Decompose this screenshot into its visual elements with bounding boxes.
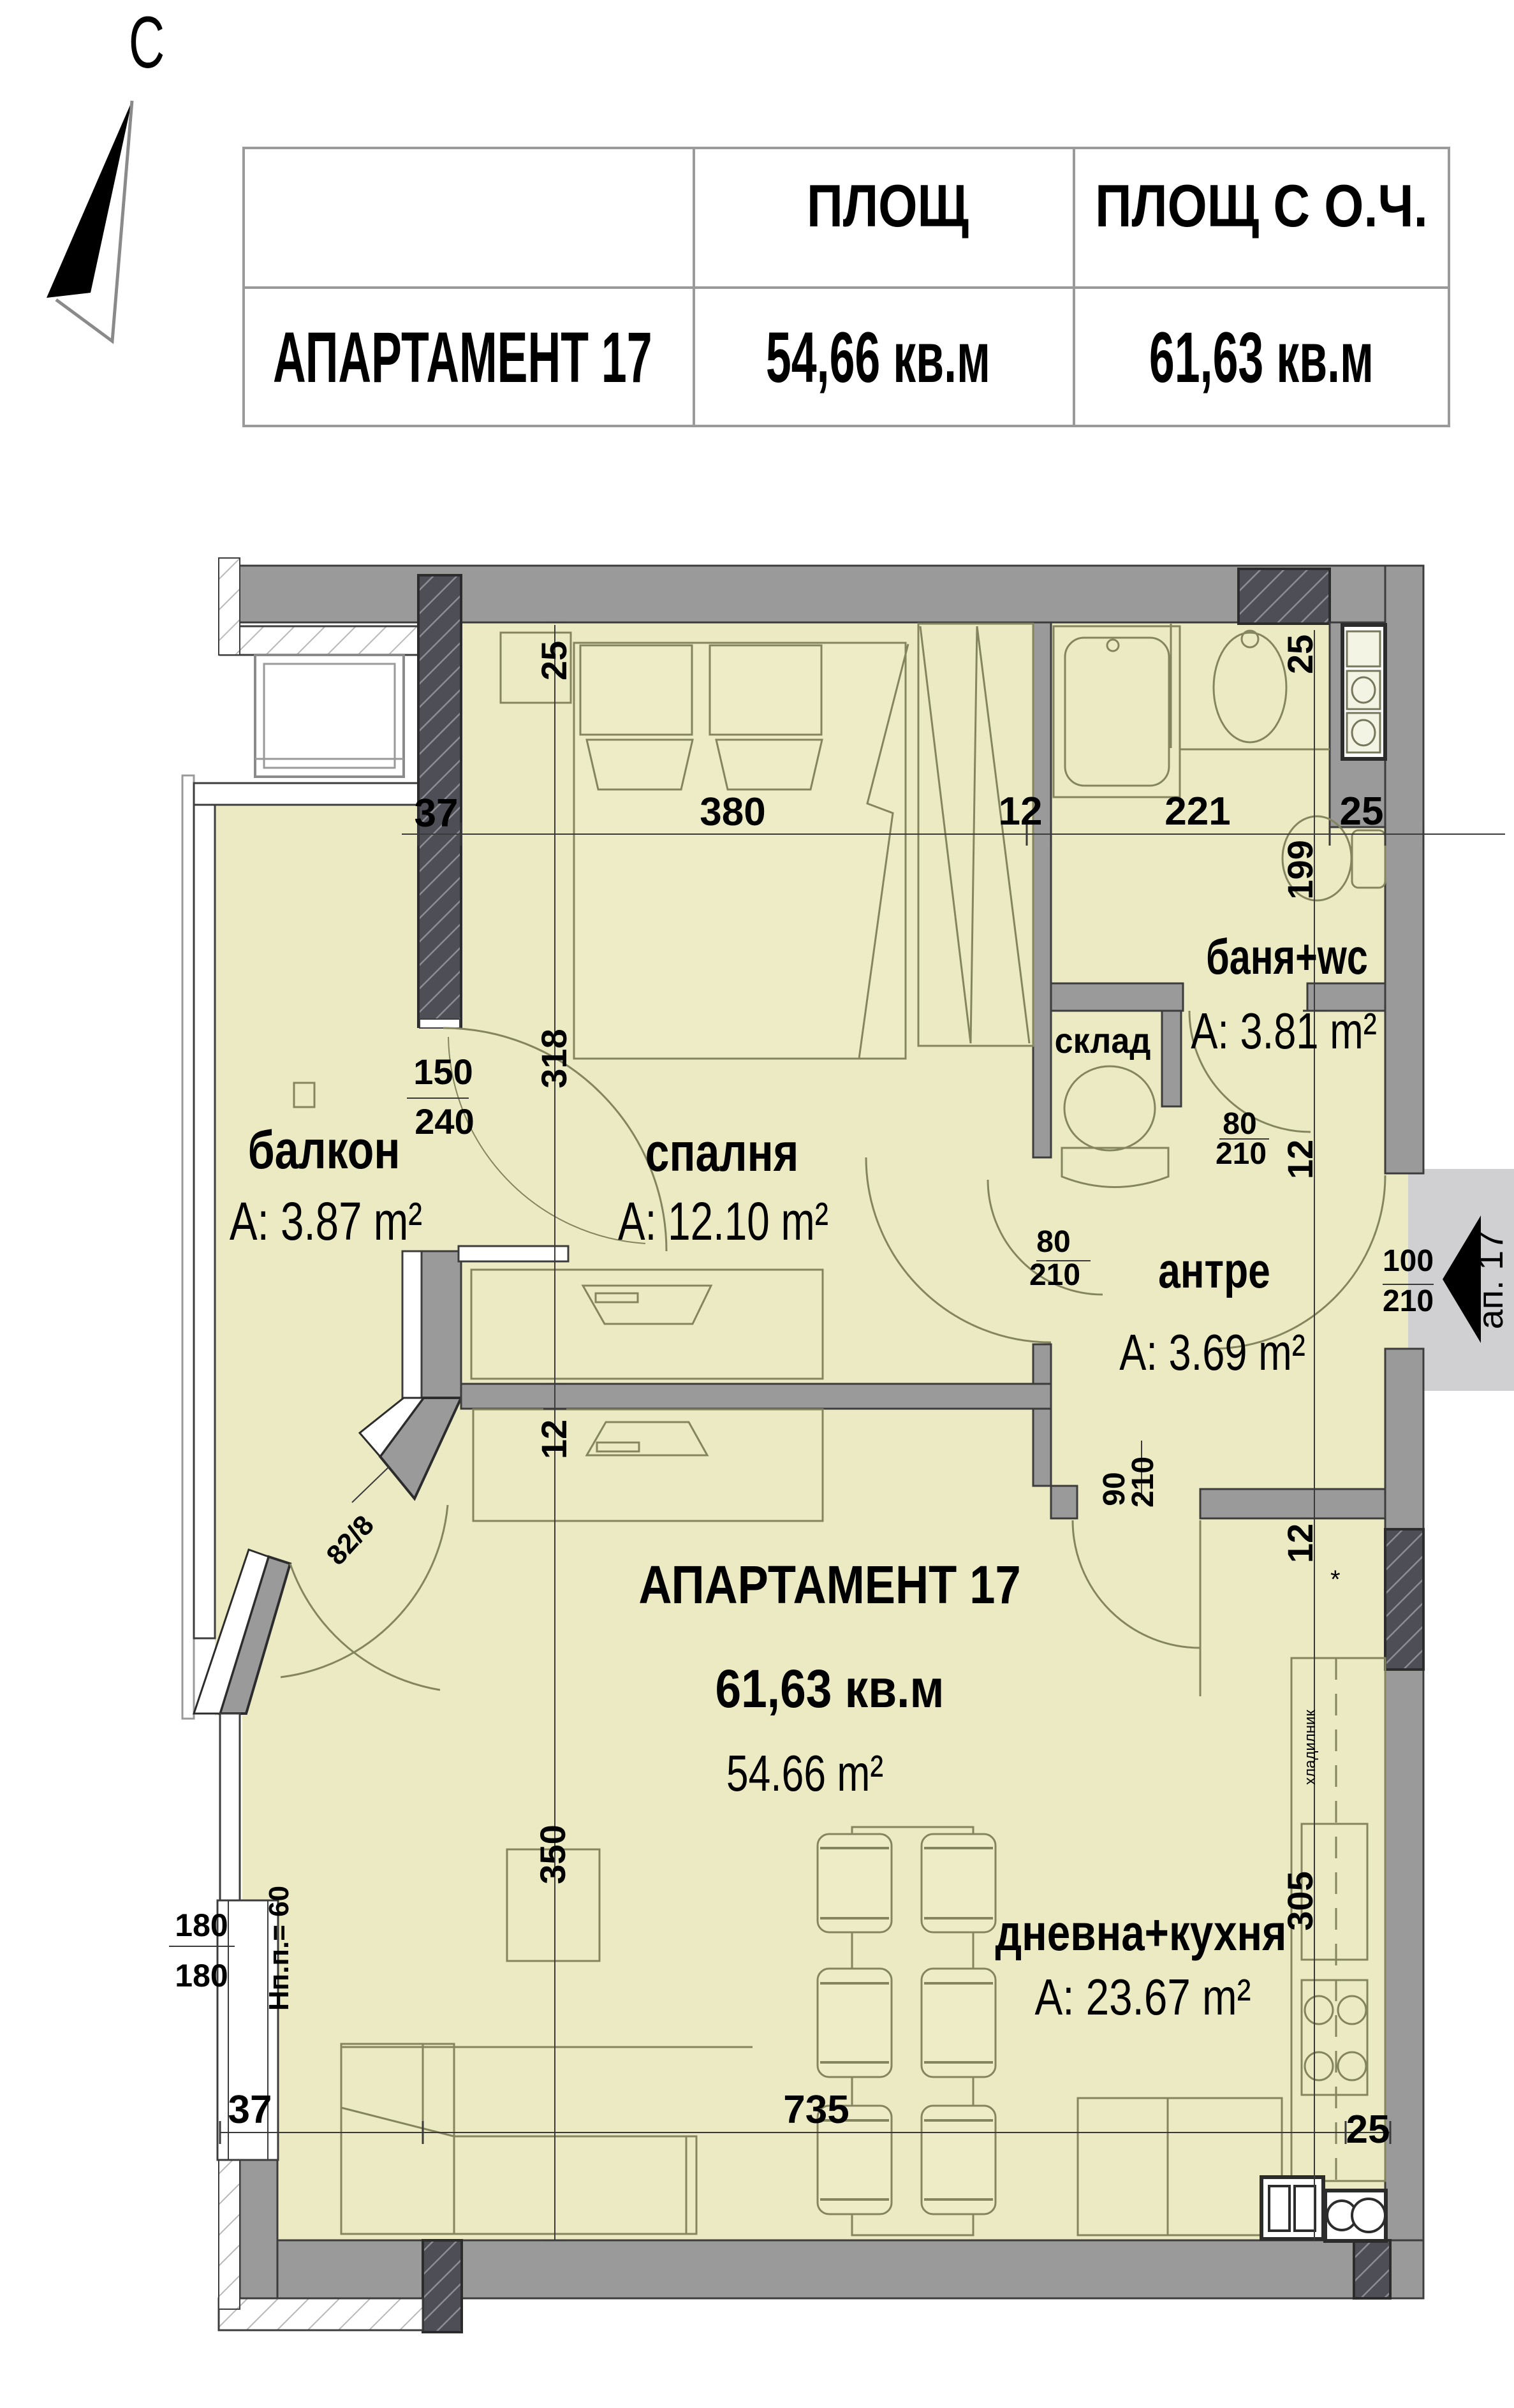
svg-text:A: 12.10 m²: A: 12.10 m² (618, 1191, 828, 1251)
svg-text:АПАРТАМЕНТ 17: АПАРТАМЕНТ 17 (273, 318, 652, 397)
svg-text:100: 100 (1383, 1244, 1434, 1278)
svg-text:25: 25 (1346, 2108, 1390, 2152)
svg-text:380: 380 (700, 790, 765, 834)
svg-text:Нп.п.= 60: Нп.п.= 60 (263, 1886, 295, 2011)
svg-text:A: 3.81 m²: A: 3.81 m² (1191, 1003, 1376, 1060)
svg-text:350: 350 (533, 1824, 573, 1884)
svg-text:АПАРТАМЕНТ 17: АПАРТАМЕНТ 17 (638, 1555, 1020, 1615)
svg-text:240: 240 (415, 1101, 474, 1142)
svg-text:25: 25 (1340, 789, 1384, 833)
svg-text:ПЛОЩ С О.Ч.: ПЛОЩ С О.Ч. (1095, 173, 1428, 240)
svg-text:хладилник: хладилник (1302, 1710, 1319, 1785)
svg-text:C: C (129, 1, 165, 84)
svg-text:спалня: спалня (645, 1123, 799, 1182)
svg-text:балкон: балкон (248, 1120, 401, 1180)
svg-text:ап. 17: ап. 17 (1470, 1231, 1510, 1330)
svg-text:A: 3.69 m²: A: 3.69 m² (1119, 1325, 1305, 1381)
svg-text:баня+wc: баня+wc (1206, 929, 1368, 985)
svg-text:дневна+кухня: дневна+кухня (996, 1904, 1287, 1962)
svg-text:54,66 кв.м: 54,66 кв.м (766, 318, 990, 397)
svg-text:A: 23.67 m²: A: 23.67 m² (1034, 1969, 1251, 2026)
svg-text:37: 37 (415, 791, 459, 835)
svg-text:318: 318 (534, 1029, 574, 1088)
svg-text:A: 3.87 m²: A: 3.87 m² (230, 1191, 422, 1251)
svg-text:ПЛОЩ: ПЛОЩ (807, 173, 969, 240)
svg-text:антре: антре (1158, 1242, 1270, 1298)
svg-text:12: 12 (1280, 1140, 1320, 1179)
svg-text:80: 80 (1223, 1107, 1256, 1141)
svg-text:735: 735 (783, 2088, 849, 2132)
svg-text:склад: склад (1055, 1021, 1151, 1061)
svg-text:25: 25 (1280, 635, 1320, 674)
svg-text:61,63 кв.м: 61,63 кв.м (715, 1659, 944, 1719)
svg-text:37: 37 (228, 2088, 272, 2132)
svg-text:54.66 m²: 54.66 m² (726, 1745, 883, 1802)
svg-text:210: 210 (1126, 1457, 1160, 1508)
svg-text:180: 180 (175, 1958, 228, 1993)
svg-text:12: 12 (534, 1420, 574, 1459)
svg-text:305: 305 (1280, 1871, 1320, 1930)
svg-text:80: 80 (1036, 1225, 1070, 1259)
svg-text:210: 210 (1216, 1137, 1267, 1171)
svg-text:221: 221 (1165, 789, 1230, 833)
svg-text:210: 210 (1029, 1258, 1080, 1292)
svg-text:180: 180 (175, 1907, 228, 1943)
svg-text:25: 25 (534, 641, 574, 680)
svg-text:12: 12 (1280, 1523, 1320, 1563)
svg-text:199: 199 (1280, 840, 1320, 899)
svg-text:*: * (1330, 1566, 1341, 1594)
svg-text:61,63 кв.м: 61,63 кв.м (1149, 318, 1374, 397)
svg-text:210: 210 (1383, 1284, 1434, 1318)
svg-text:12: 12 (999, 789, 1043, 833)
svg-text:150: 150 (413, 1052, 473, 1092)
